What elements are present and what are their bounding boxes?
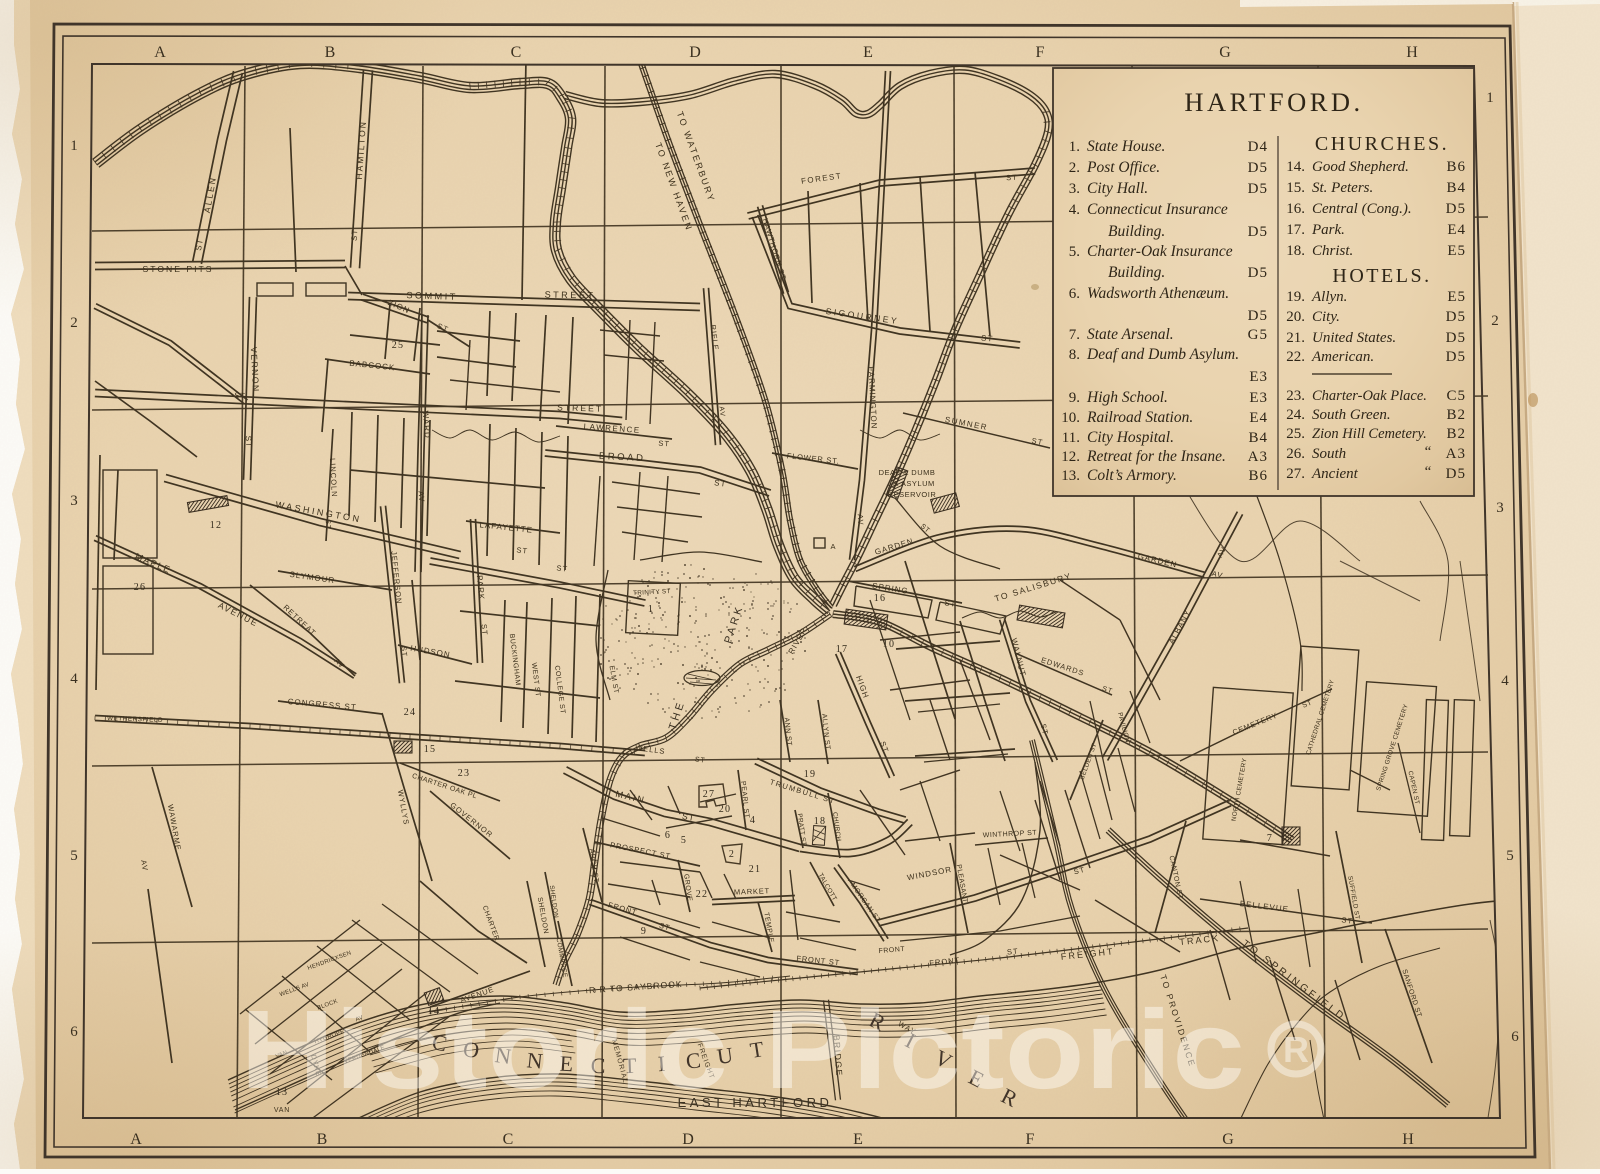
svg-text:17.: 17. [1286, 222, 1305, 238]
svg-text:D5: D5 [1248, 160, 1268, 176]
svg-text:Retreat for the Insane.: Retreat for the Insane. [1086, 448, 1226, 465]
svg-text:Connecticut Insurance: Connecticut Insurance [1087, 201, 1228, 218]
svg-text:ST: ST [350, 228, 360, 241]
svg-text:20: 20 [719, 804, 731, 815]
svg-text:C5: C5 [1446, 388, 1466, 404]
svg-text:3.: 3. [1069, 181, 1080, 197]
svg-text:STREET: STREET [557, 402, 603, 414]
svg-text:9: 9 [641, 926, 647, 937]
svg-text:B: B [317, 1131, 328, 1148]
svg-text:19.: 19. [1286, 289, 1305, 305]
svg-text:D5: D5 [1446, 330, 1466, 346]
svg-text:Park.: Park. [1311, 222, 1345, 238]
svg-text:2: 2 [70, 315, 78, 331]
svg-text:5: 5 [70, 848, 78, 864]
svg-text:D: D [682, 1131, 694, 1148]
svg-text:5: 5 [1506, 848, 1514, 864]
svg-text:Zion Hill Cemetery.: Zion Hill Cemetery. [1312, 426, 1427, 442]
svg-text:SOMMIT: SOMMIT [406, 290, 458, 302]
svg-text:12.: 12. [1061, 449, 1080, 465]
svg-text:Charter-Oak Place.: Charter-Oak Place. [1312, 388, 1427, 404]
svg-text:B2: B2 [1446, 426, 1466, 442]
svg-text:Ancient: Ancient [1311, 466, 1359, 482]
svg-text:F: F [1026, 1131, 1035, 1148]
svg-text:11.: 11. [1062, 430, 1080, 446]
svg-text:State Arsenal.: State Arsenal. [1087, 326, 1174, 343]
svg-text:ST: ST [244, 436, 254, 449]
svg-text:1: 1 [648, 604, 654, 615]
svg-text:D5: D5 [1446, 466, 1466, 482]
svg-text:CHURCHES.: CHURCHES. [1315, 133, 1449, 155]
svg-text:C: C [503, 1131, 514, 1148]
svg-text:Christ.: Christ. [1312, 243, 1353, 259]
svg-text:Building.: Building. [1108, 264, 1165, 281]
svg-text:14.: 14. [1286, 159, 1305, 175]
svg-text:21.: 21. [1286, 330, 1305, 346]
svg-text:2: 2 [1491, 313, 1499, 329]
svg-text:E3: E3 [1249, 369, 1268, 385]
svg-text:15: 15 [424, 744, 436, 755]
svg-text:5.: 5. [1069, 244, 1080, 260]
svg-text:6.: 6. [1069, 286, 1080, 302]
svg-text:21: 21 [749, 864, 761, 875]
svg-text:ST: ST [944, 598, 957, 609]
svg-text:Colt’s Armory.: Colt’s Armory. [1087, 467, 1177, 484]
svg-text:B4: B4 [1248, 430, 1268, 446]
svg-text:E5: E5 [1447, 289, 1466, 305]
svg-text:R: R [1283, 1029, 1309, 1070]
svg-text:D5: D5 [1446, 349, 1466, 365]
svg-text:United States.: United States. [1312, 330, 1396, 346]
svg-text:HOTELS.: HOTELS. [1332, 265, 1431, 287]
svg-text:27: 27 [703, 789, 715, 800]
svg-text:6: 6 [665, 830, 671, 841]
svg-text:A3: A3 [1248, 449, 1268, 465]
svg-text:AV: AV [717, 406, 725, 418]
svg-text:8.: 8. [1069, 347, 1080, 363]
svg-text:16: 16 [874, 593, 886, 604]
svg-text:G: G [1219, 44, 1231, 61]
svg-text:E4: E4 [1447, 222, 1466, 238]
svg-text:15.: 15. [1286, 180, 1305, 196]
svg-text:H: H [1406, 44, 1418, 61]
svg-text:10.: 10. [1061, 410, 1080, 426]
svg-text:D5: D5 [1248, 181, 1268, 197]
svg-text:3: 3 [1496, 500, 1504, 516]
svg-text:Building.: Building. [1108, 223, 1165, 240]
svg-text:7.: 7. [1069, 327, 1080, 343]
svg-text:B6: B6 [1446, 159, 1466, 175]
svg-text:HARTFORD.: HARTFORD. [1184, 87, 1363, 117]
svg-text:B6: B6 [1248, 468, 1268, 484]
svg-text:D5: D5 [1248, 224, 1268, 240]
svg-text:24.: 24. [1286, 407, 1305, 423]
svg-text:A3: A3 [1446, 446, 1466, 462]
svg-text:Allyn.: Allyn. [1311, 289, 1347, 305]
svg-text:2: 2 [729, 849, 735, 860]
svg-text:E: E [853, 1131, 863, 1148]
svg-text:18: 18 [814, 816, 826, 827]
svg-text:ST: ST [1007, 946, 1019, 956]
svg-text:H: H [1402, 1131, 1414, 1148]
svg-text:23.: 23. [1286, 388, 1305, 404]
svg-text:1: 1 [1486, 90, 1494, 106]
svg-text:E3: E3 [1249, 390, 1268, 406]
svg-text:MARKET: MARKET [734, 886, 770, 896]
svg-text:High School.: High School. [1086, 389, 1168, 406]
svg-text:D4: D4 [1248, 139, 1268, 155]
svg-text:4.: 4. [1069, 202, 1080, 218]
svg-text:E4: E4 [1249, 410, 1268, 426]
svg-text:ST: ST [1341, 915, 1354, 925]
svg-text:B4: B4 [1446, 180, 1466, 196]
svg-text:F: F [1036, 44, 1045, 61]
svg-text:A: A [154, 44, 166, 61]
svg-text:9.: 9. [1069, 390, 1080, 406]
svg-text:American.: American. [1311, 349, 1374, 365]
svg-text:16.: 16. [1286, 201, 1305, 217]
svg-text:“: “ [1425, 444, 1432, 460]
svg-text:1.: 1. [1069, 139, 1080, 155]
svg-text:ST: ST [981, 333, 994, 343]
svg-text:12: 12 [210, 520, 222, 531]
svg-text:Wadsworth Athenæum.: Wadsworth Athenæum. [1087, 285, 1229, 302]
svg-text:STONE PITS: STONE PITS [143, 264, 214, 274]
svg-text:1: 1 [70, 138, 78, 154]
svg-text:ST: ST [658, 439, 670, 449]
svg-text:22: 22 [696, 889, 708, 900]
svg-text:City Hall.: City Hall. [1087, 180, 1148, 197]
svg-text:AV: AV [417, 491, 427, 503]
svg-text:ST: ST [480, 624, 490, 636]
svg-text:20.: 20. [1286, 309, 1305, 325]
svg-text:ST: ST [714, 478, 727, 489]
svg-text:ST: ST [234, 391, 246, 400]
svg-text:D5: D5 [1446, 309, 1466, 325]
svg-text:4: 4 [70, 671, 78, 687]
svg-text:6: 6 [70, 1024, 78, 1040]
svg-text:Charter-Oak Insurance: Charter-Oak Insurance [1087, 243, 1233, 260]
svg-text:South: South [1312, 446, 1346, 462]
svg-text:7: 7 [1267, 833, 1273, 844]
svg-text:24: 24 [404, 707, 416, 718]
svg-text:Post Office.: Post Office. [1086, 159, 1160, 176]
svg-text:D5: D5 [1446, 201, 1466, 217]
svg-text:2.: 2. [1069, 160, 1080, 176]
svg-text:City.: City. [1312, 309, 1340, 325]
svg-text:ST: ST [1006, 173, 1018, 183]
svg-text:B: B [325, 44, 336, 61]
svg-text:26: 26 [134, 582, 146, 593]
svg-text:D5: D5 [1248, 308, 1268, 324]
svg-text:4: 4 [1501, 673, 1509, 689]
svg-text:AV: AV [856, 514, 866, 526]
svg-text:G5: G5 [1248, 327, 1268, 343]
svg-text:STREET: STREET [545, 290, 596, 301]
svg-text:D5: D5 [1248, 265, 1268, 281]
svg-text:B2: B2 [1446, 407, 1466, 423]
svg-text:23: 23 [458, 768, 470, 779]
svg-text:E: E [863, 44, 873, 61]
svg-text:Good Shepherd.: Good Shepherd. [1312, 159, 1409, 175]
svg-text:19: 19 [804, 769, 816, 780]
svg-text:22.: 22. [1286, 349, 1305, 365]
svg-text:27.: 27. [1286, 466, 1305, 482]
svg-text:6: 6 [1511, 1029, 1519, 1045]
svg-text:St. Peters.: St. Peters. [1312, 180, 1373, 196]
svg-text:17: 17 [836, 644, 848, 655]
svg-text:ST: ST [556, 563, 568, 573]
svg-text:Central (Cong.).: Central (Cong.). [1312, 201, 1412, 217]
svg-text:26.: 26. [1286, 446, 1305, 462]
svg-text:E5: E5 [1447, 243, 1466, 259]
svg-text:3: 3 [70, 493, 78, 509]
svg-text:Deaf and Dumb Asylum.: Deaf and Dumb Asylum. [1086, 346, 1239, 363]
svg-text:Historic Pictoric: Historic Pictoric [240, 987, 1245, 1112]
svg-text:18.: 18. [1286, 243, 1305, 259]
svg-text:City Hospital.: City Hospital. [1087, 429, 1174, 446]
svg-text:13.: 13. [1061, 468, 1080, 484]
svg-text:A: A [830, 542, 835, 551]
svg-text:5: 5 [681, 835, 687, 846]
svg-text:State House.: State House. [1087, 138, 1165, 155]
svg-text:D: D [689, 44, 701, 61]
svg-text:“: “ [1425, 464, 1432, 480]
svg-text:A: A [130, 1131, 142, 1148]
svg-text:C: C [511, 44, 522, 61]
svg-text:South Green.: South Green. [1312, 407, 1391, 423]
svg-text:G: G [1222, 1131, 1234, 1148]
svg-text:Railroad Station.: Railroad Station. [1086, 409, 1193, 426]
svg-text:25.: 25. [1286, 426, 1305, 442]
svg-text:ST: ST [516, 545, 528, 555]
svg-text:4: 4 [750, 815, 756, 826]
